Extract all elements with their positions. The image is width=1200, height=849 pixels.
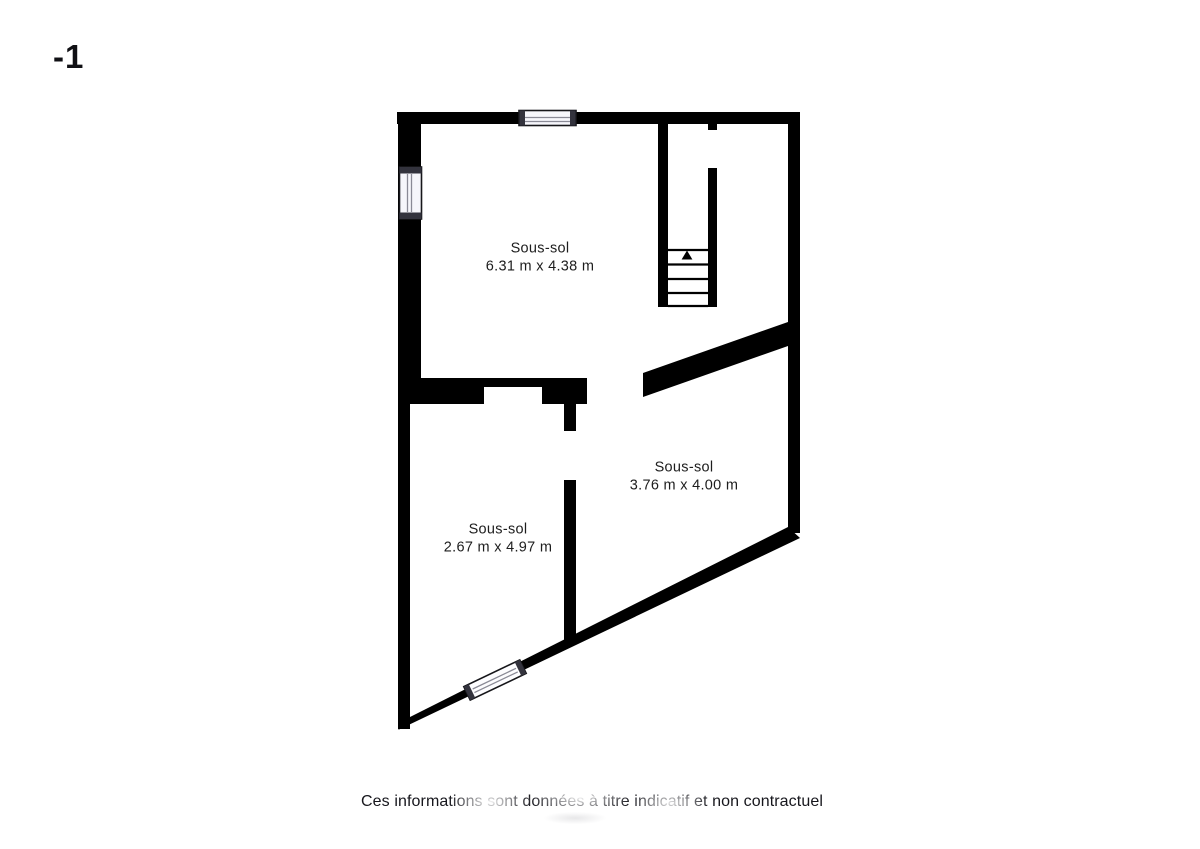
windows: [400, 111, 577, 701]
floorplan-page: -1: [0, 0, 1200, 849]
disclaimer-text: Ces informations sont données à titre in…: [0, 793, 1184, 811]
stairs: [668, 250, 708, 306]
wall-interior-diagonal: [643, 322, 788, 397]
wall-bottom-diagonal: [398, 527, 800, 730]
diagonal-window-symbol: [464, 660, 526, 700]
wall-divider-horizontal-thin: [484, 378, 542, 387]
wall-stairwell-inner: [708, 168, 717, 307]
wall-divider-vertical: [564, 480, 576, 642]
room-label-dimensions: 2.67 m x 4.97 m: [444, 539, 552, 557]
room-label-name: Sous-sol: [511, 241, 570, 257]
wall-top: [397, 112, 800, 124]
room-label: Sous-sol 3.76 m x 4.00 m: [630, 460, 738, 495]
room-label: Sous-sol 6.31 m x 4.38 m: [486, 241, 594, 276]
wall-stairwell-left: [658, 124, 668, 307]
room-label-name: Sous-sol: [655, 460, 714, 476]
room-label-dimensions: 3.76 m x 4.00 m: [630, 477, 738, 495]
room-label-dimensions: 6.31 m x 4.38 m: [486, 258, 594, 276]
room-label-name: Sous-sol: [469, 522, 528, 538]
left-window-symbol: [400, 167, 422, 219]
exterior-walls: [397, 112, 800, 730]
wall-divider-stub: [564, 404, 576, 431]
room-label: Sous-sol 2.67 m x 4.97 m: [444, 522, 552, 557]
floorplan-svg: [0, 0, 1200, 849]
wall-left-upper: [398, 112, 421, 404]
wall-divider-horizontal-left: [398, 378, 484, 404]
wall-stairwell-top-stub: [708, 124, 717, 130]
wall-left-lower: [398, 404, 410, 729]
stairs-up-arrow-icon: [682, 251, 693, 260]
wall-divider-horizontal-right: [542, 378, 587, 404]
wall-right: [788, 112, 800, 533]
top-window-symbol: [519, 111, 576, 126]
